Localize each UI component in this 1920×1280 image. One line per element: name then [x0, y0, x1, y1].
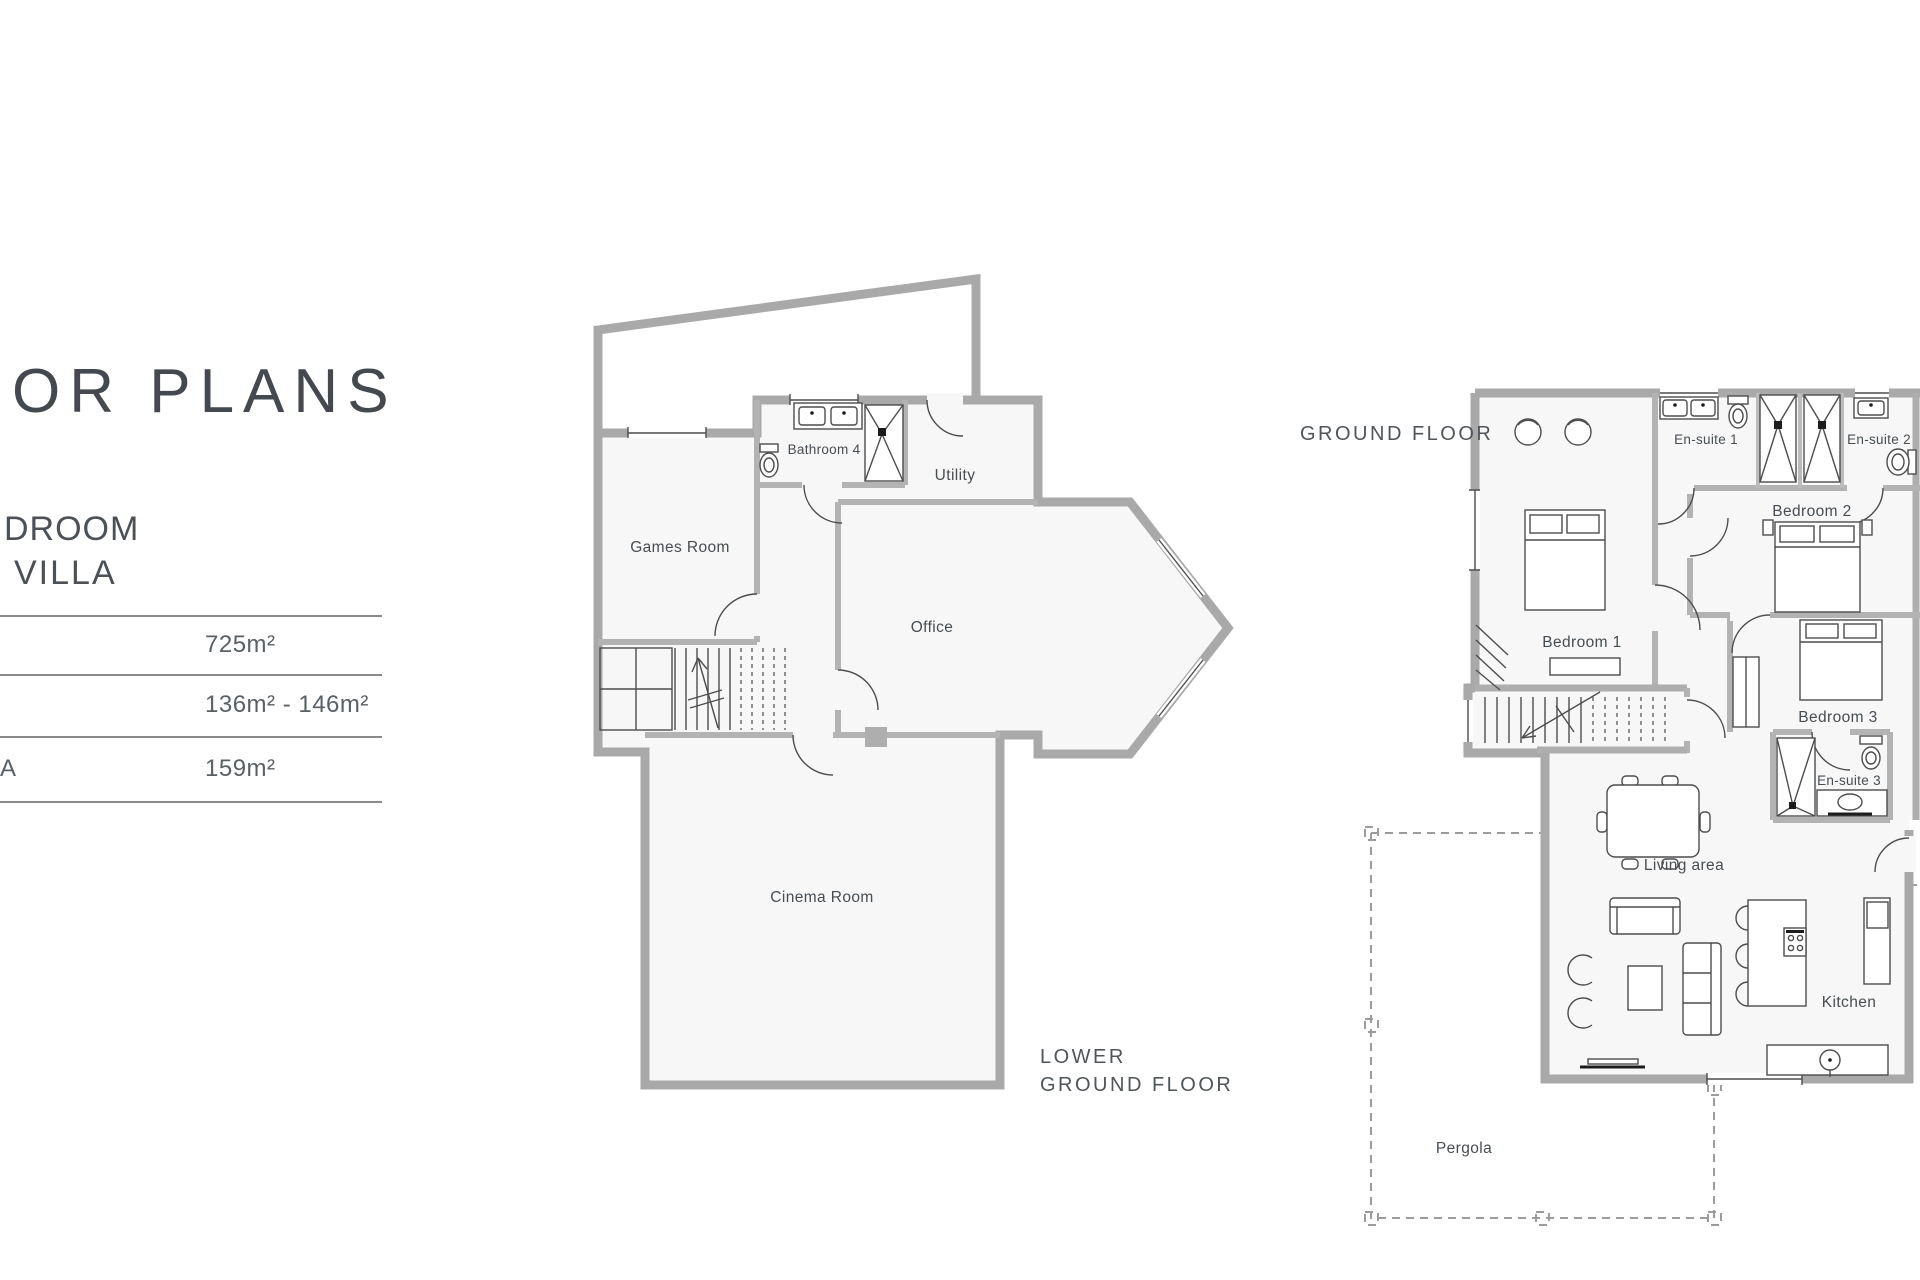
page-title: OR PLANS [12, 356, 398, 427]
table-row: 136m² - 146m² [0, 674, 382, 736]
caption-line: GROUND FLOOR [1040, 1071, 1233, 1099]
villa-subtitle-line1: DROOM [4, 510, 139, 549]
room-label-cinema: Cinema Room [770, 889, 873, 906]
room-label-ensuite2: En-suite 2 [1847, 432, 1911, 447]
row-value: 136m² - 146m² [205, 691, 369, 719]
dining-set [1597, 776, 1710, 869]
row-value: 159m² [205, 754, 276, 782]
lower-ground-floor-plan: Games Room Bathroom 4 Utility Office Cin… [580, 262, 1240, 1102]
room-label-bathroom4: Bathroom 4 [788, 442, 861, 457]
room-label-utility: Utility [935, 467, 976, 484]
table-row: 725m² [0, 615, 382, 674]
row-value: 725m² [205, 630, 276, 658]
caption-line: LOWER [1040, 1043, 1233, 1071]
room-label-bedroom2: Bedroom 2 [1772, 503, 1851, 520]
room-label-bedroom3: Bedroom 3 [1798, 709, 1877, 726]
lower-ground-floor-caption: LOWER GROUND FLOOR [1040, 1043, 1233, 1099]
villa-subtitle-line2: VILLA [14, 554, 117, 593]
bedroom2-furniture [1763, 520, 1872, 612]
room-label-bedroom1: Bedroom 1 [1542, 634, 1621, 651]
floor-plans-page: { "header": { "title": "OR PLANS", "subt… [0, 0, 1920, 1280]
room-label-ensuite1: En-suite 1 [1674, 432, 1738, 447]
room-label-living: Living area [1644, 857, 1724, 874]
ground-floor-caption: GROUND FLOOR [1300, 420, 1493, 448]
room-label-kitchen: Kitchen [1822, 994, 1877, 1011]
room-label-games: Games Room [630, 539, 730, 556]
ground-floor-plan: Bedroom 1 En-suite 1 En-suite 2 Bedroom … [1360, 370, 1920, 1250]
room-label-office: Office [911, 619, 954, 636]
area-table: 725m² 136m² - 146m² A 159m² [0, 615, 382, 803]
room-label-ensuite3: En-suite 3 [1817, 773, 1881, 788]
table-row: A 159m² [0, 736, 382, 803]
room-label-pergola: Pergola [1436, 1140, 1492, 1157]
row-label: A [0, 754, 16, 782]
